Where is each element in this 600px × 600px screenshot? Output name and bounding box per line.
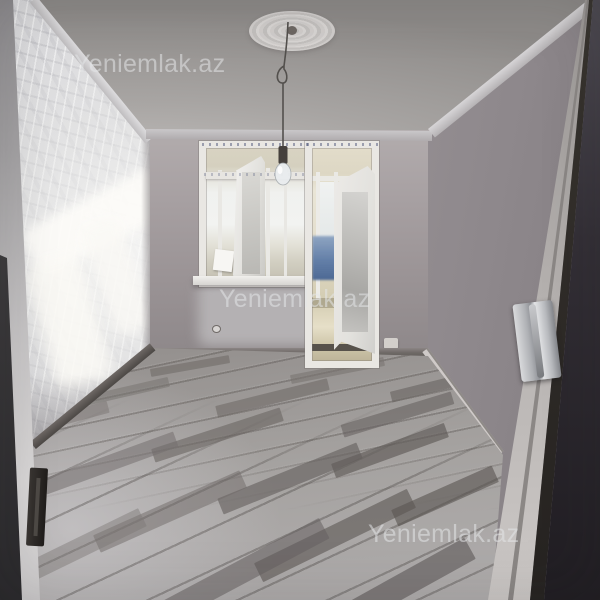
open-balcony-door [334, 166, 375, 368]
bulb-wire-drawing [255, 6, 325, 198]
corner-shadow [141, 140, 150, 350]
hinge-knuckle [529, 304, 545, 378]
bulb-socket [279, 146, 288, 164]
hanging-bulb [255, 6, 325, 198]
window-sill [193, 276, 319, 285]
apartment-room-photo: Yeniemlak.az Yeniemlak.az Yeniemlak.az [0, 0, 600, 600]
electrical-socket [212, 325, 221, 333]
light-bulb [275, 163, 291, 185]
watermark-center: Yeniemlak.az [219, 285, 370, 314]
watermark-bottom-right: Yeniemlak.az [368, 520, 519, 549]
bulb-highlight [278, 166, 283, 174]
hinge-slot [33, 478, 40, 536]
wire-loop [277, 22, 288, 83]
watermark-top-left: Yeniemlak.az [74, 50, 225, 79]
